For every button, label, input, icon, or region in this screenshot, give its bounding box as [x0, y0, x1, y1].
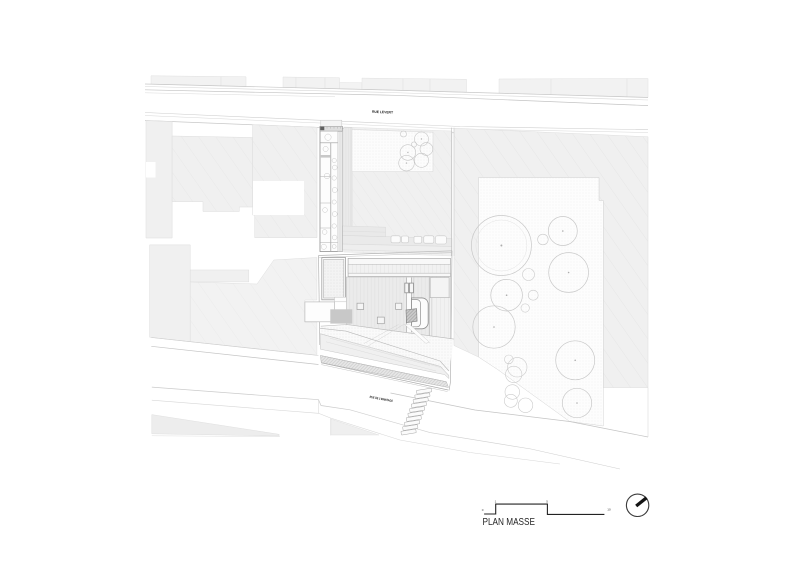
svg-text:PLAN MASSE: PLAN MASSE: [483, 517, 536, 528]
svg-text:RUE LEVERT: RUE LEVERT: [372, 110, 394, 115]
svg-text:10: 10: [607, 508, 611, 512]
